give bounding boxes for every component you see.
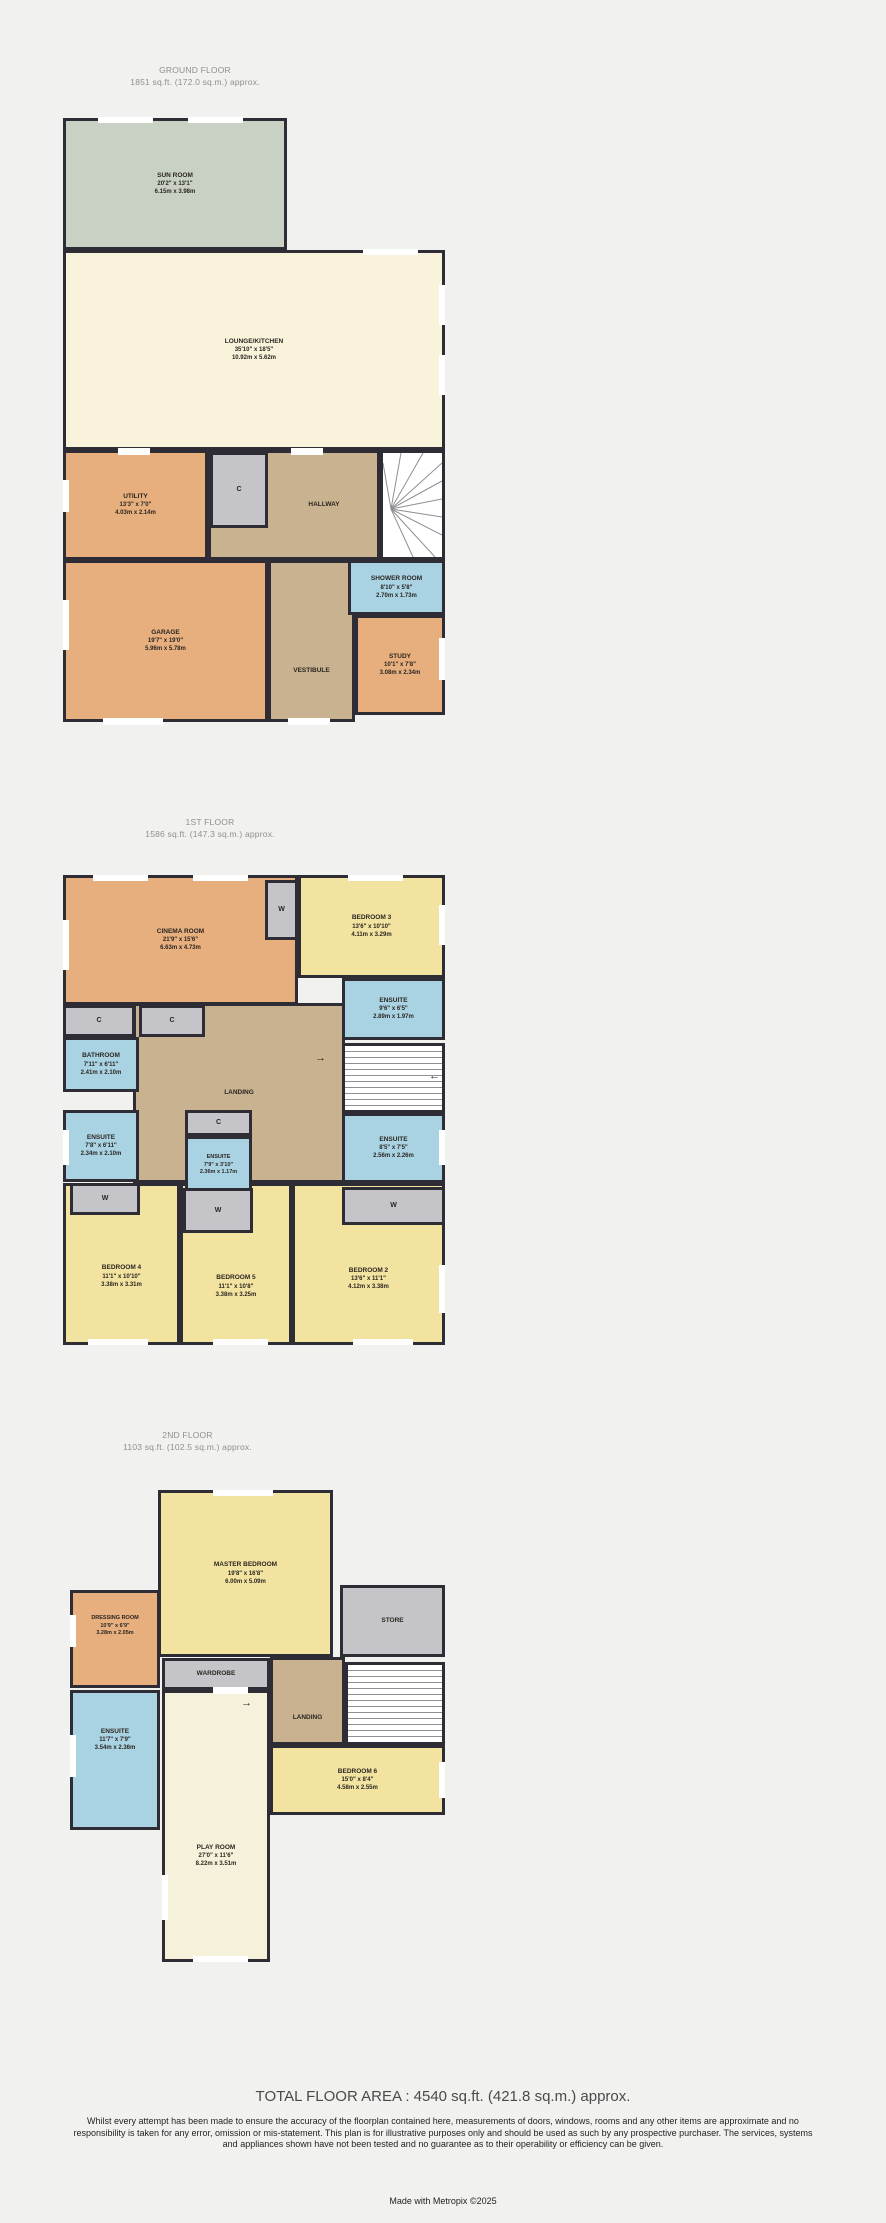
room-name: LANDING (293, 1714, 323, 1723)
room-dressing-room: DRESSING ROOM10'9" x 6'9"3.28m x 2.05m (70, 1590, 160, 1688)
window (439, 1762, 445, 1798)
window (193, 875, 248, 881)
room-dims-metric: 4.03m x 2.14m (115, 509, 156, 517)
room-dims-metric: 3.08m x 2.34m (380, 669, 421, 677)
room-dims-imperial: 13'3" x 7'0" (115, 501, 156, 509)
window (193, 1956, 248, 1962)
room-shower-room: SHOWER ROOM8'10" x 5'8"2.70m x 1.73m (348, 560, 445, 615)
window (439, 285, 445, 325)
room-name: MASTER BEDROOM (214, 1561, 277, 1570)
room-dims-imperial: 9'6" x 6'5" (373, 1005, 414, 1013)
staircase-ground (380, 450, 445, 560)
room-dims-metric: 4.58m x 2.55m (337, 1784, 378, 1792)
door-opening (118, 448, 150, 455)
room-dims-metric: 10.92m x 5.62m (225, 354, 284, 362)
room-dims-metric: 3.28m x 2.05m (91, 1630, 138, 1637)
room-name: BATHROOM (81, 1052, 122, 1061)
room-name: LANDING (224, 1089, 254, 1098)
room-dims-imperial: 11'7" x 7'9" (95, 1736, 136, 1744)
room-dims-imperial: 13'6" x 10'10" (351, 923, 391, 931)
window (348, 875, 403, 881)
window (363, 249, 418, 255)
floorplan-page: GROUND FLOOR 1851 sq.ft. (172.0 sq.m.) a… (0, 0, 886, 2223)
room-dims-metric: 5.96m x 5.78m (145, 645, 186, 653)
first-floor-plan: LANDING CINEMA ROOM21'9" x 15'6"6.63m x … (63, 875, 445, 1345)
room-dims-metric: 6.63m x 4.73m (157, 944, 204, 952)
metropix-credit: Made with Metropix ©2025 (0, 2196, 886, 2206)
room-ensuite-second: ENSUITE11'7" x 7'9"3.54m x 2.36m (70, 1690, 160, 1830)
room-dims-imperial: 7'9" x 3'10" (200, 1162, 237, 1169)
room-name: BEDROOM 3 (351, 914, 391, 923)
room-wardrobe-box: W (265, 880, 298, 940)
window (439, 1130, 445, 1165)
second-floor-header: 2ND FLOOR 1103 sq.ft. (102.5 sq.m.) appr… (40, 1429, 335, 1454)
room-dims-imperial: 27'0" x 11'6" (196, 1852, 237, 1860)
room-sun-room: SUN ROOM20'2" x 13'1"6.15m x 3.98m (63, 118, 287, 250)
room-name: ENSUITE (81, 1134, 122, 1143)
window (439, 1265, 445, 1313)
room-name: W (215, 1206, 222, 1215)
room-name: PLAY ROOM (196, 1844, 237, 1853)
room-cinema: CINEMA ROOM21'9" x 15'6"6.63m x 4.73m (63, 875, 298, 1005)
room-landing: LANDING (270, 1657, 345, 1745)
room-name: HALLWAY (308, 501, 339, 510)
room-dims-metric: 3.54m x 2.36m (95, 1744, 136, 1752)
staircase-second (345, 1662, 445, 1745)
room-dims-metric: 2.56m x 2.26m (373, 1152, 414, 1160)
room-bedroom-3: BEDROOM 313'6" x 10'10"4.11m x 3.29m (298, 875, 445, 978)
room-dims-metric: 2.89m x 1.97m (373, 1013, 414, 1021)
room-study: STUDY10'1" x 7'8"3.08m x 2.34m (355, 615, 445, 715)
window (439, 638, 445, 680)
room-cupboard: C (139, 1005, 205, 1037)
room-name: W (278, 905, 285, 914)
room-dims-imperial: 20'2" x 13'1" (155, 180, 196, 188)
room-dims-metric: 2.34m x 2.10m (81, 1150, 122, 1158)
first-floor-header: 1ST FLOOR 1586 sq.ft. (147.3 sq.m.) appr… (60, 816, 360, 841)
room-dims-metric: 6.15m x 3.98m (155, 188, 196, 196)
room-name: DRESSING ROOM (91, 1615, 138, 1622)
room-store: STORE (340, 1585, 445, 1657)
room-name: SUN ROOM (155, 172, 196, 181)
stairs-arrow-icon: ← (429, 1071, 440, 1082)
room-dims-metric: 2.41m x 2.10m (81, 1069, 122, 1077)
window (63, 600, 69, 650)
room-wardrobe-box: W (342, 1187, 445, 1225)
room-dims-imperial: 8'10" x 5'8" (371, 584, 422, 592)
total-floor-area: TOTAL FLOOR AREA : 4540 sq.ft. (421.8 sq… (0, 2088, 886, 2105)
room-ensuite-right: ENSUITE8'5" x 7'5"2.56m x 2.26m (342, 1113, 445, 1183)
room-dims-imperial: 7'11" x 6'11" (81, 1061, 122, 1069)
room-bedroom-6: BEDROOM 615'0" x 8'4"4.58m x 2.55m (270, 1745, 445, 1815)
room-dims-imperial: 8'5" x 7'5" (373, 1144, 414, 1152)
room-name: ENSUITE (373, 1136, 414, 1145)
spiral-stairs-icon (383, 453, 442, 557)
window (188, 117, 243, 123)
door-opening (288, 718, 330, 725)
room-dims-metric: 2.70m x 1.73m (371, 592, 422, 600)
room-vestibule: VESTIBULE (268, 560, 355, 722)
room-name: WARDROBE (197, 1670, 236, 1679)
window (63, 920, 69, 970)
room-dims-imperial: 19'7" x 19'0" (145, 637, 186, 645)
room-master-bedroom: MASTER BEDROOM19'8" x 16'8"6.00m x 5.09m (158, 1490, 333, 1657)
room-cupboard: C (185, 1110, 252, 1136)
room-name: LOUNGE/KITCHEN (225, 338, 284, 347)
window (103, 718, 163, 725)
room-name: C (236, 485, 241, 494)
floor-area: 1103 sq.ft. (102.5 sq.m.) approx. (40, 1441, 335, 1453)
room-name: BEDROOM 6 (337, 1768, 378, 1777)
room-ensuite-left: ENSUITE7'8" x 6'11"2.34m x 2.10m (63, 1110, 139, 1182)
room-dims-metric: 3.38m x 3.25m (216, 1291, 257, 1299)
room-dims-imperial: 11'1" x 10'8" (216, 1283, 257, 1291)
room-name: GARAGE (145, 629, 186, 638)
room-dims-imperial: 11'1" x 10'10" (101, 1273, 142, 1281)
room-name: SHOWER ROOM (371, 575, 422, 584)
window (213, 1339, 268, 1345)
room-dims-imperial: 19'8" x 16'8" (214, 1570, 277, 1578)
room-dims-metric: 2.36m x 1.17m (200, 1169, 237, 1176)
floor-area: 1851 sq.ft. (172.0 sq.m.) approx. (45, 76, 345, 88)
room-dims-metric: 6.00m x 5.09m (214, 1578, 277, 1586)
room-cupboard: C (210, 452, 268, 528)
room-dims-metric: 4.11m x 3.29m (351, 931, 391, 939)
window (213, 1490, 273, 1496)
room-name: W (102, 1194, 109, 1203)
room-garage: GARAGE19'7" x 19'0"5.96m x 5.78m (63, 560, 268, 722)
stairs-arrow-icon: → (315, 1053, 326, 1064)
room-ensuite-center: ENSUITE7'9" x 3'10"2.36m x 1.17m (185, 1136, 252, 1195)
room-name: ENSUITE (95, 1728, 136, 1737)
room-dims-metric: 8.22m x 3.51m (196, 1860, 237, 1868)
floor-title: GROUND FLOOR (45, 64, 345, 76)
window (88, 1339, 148, 1345)
room-bathroom: BATHROOM7'11" x 6'11"2.41m x 2.10m (63, 1037, 139, 1092)
room-name: VESTIBULE (293, 667, 329, 676)
room-name: UTILITY (115, 493, 156, 502)
room-name: BEDROOM 5 (216, 1274, 257, 1283)
window (63, 480, 69, 512)
room-name: STUDY (380, 653, 421, 662)
window (70, 1615, 76, 1647)
floor-area: 1586 sq.ft. (147.3 sq.m.) approx. (60, 828, 360, 840)
window (93, 875, 148, 881)
ground-floor-header: GROUND FLOOR 1851 sq.ft. (172.0 sq.m.) a… (45, 64, 345, 89)
room-utility: UTILITY13'3" x 7'0"4.03m x 2.14m (63, 450, 208, 560)
window (439, 905, 445, 945)
room-dims-imperial: 35'10" x 18'5" (225, 346, 284, 354)
room-dims-imperial: 15'0" x 8'4" (337, 1776, 378, 1784)
floor-title: 1ST FLOOR (60, 816, 360, 828)
room-name: C (169, 1016, 174, 1025)
room-wardrobe-box: W (183, 1188, 253, 1233)
room-name: BEDROOM 2 (348, 1267, 389, 1276)
stairs-arrow-icon: → (241, 1698, 252, 1709)
room-play-room: PLAY ROOM27'0" x 11'6"8.22m x 3.51m (162, 1690, 270, 1962)
room-name: STORE (381, 1617, 403, 1626)
room-name: W (390, 1201, 397, 1210)
room-name: CINEMA ROOM (157, 928, 204, 937)
room-ensuite-bed3: ENSUITE9'6" x 6'5"2.89m x 1.97m (342, 978, 445, 1040)
window (98, 117, 153, 123)
room-name: C (216, 1118, 221, 1127)
window (353, 1339, 413, 1345)
door-opening (291, 448, 323, 455)
room-dims-metric: 4.12m x 3.38m (348, 1283, 389, 1291)
window (162, 1875, 168, 1920)
room-name: ENSUITE (200, 1154, 237, 1161)
room-dims-imperial: 10'1" x 7'8" (380, 661, 421, 669)
room-dims-imperial: 10'9" x 6'9" (91, 1623, 138, 1630)
second-floor-plan: MASTER BEDROOM19'8" x 16'8"6.00m x 5.09m… (63, 1490, 445, 1965)
room-lounge-kitchen: LOUNGE/KITCHEN35'10" x 18'5"10.92m x 5.6… (63, 250, 445, 450)
room-dims-metric: 3.38m x 3.31m (101, 1281, 142, 1289)
floor-title: 2ND FLOOR (40, 1429, 335, 1441)
ground-floor-plan: SUN ROOM20'2" x 13'1"6.15m x 3.98m LOUNG… (63, 110, 445, 725)
room-name: BEDROOM 4 (101, 1264, 142, 1273)
window (70, 1735, 76, 1777)
window (63, 1130, 69, 1165)
room-cupboard: C (63, 1005, 135, 1037)
room-dims-imperial: 7'8" x 6'11" (81, 1142, 122, 1150)
room-dims-imperial: 21'9" x 15'6" (157, 936, 204, 944)
room-dims-imperial: 13'6" x 11'1" (348, 1275, 389, 1283)
disclaimer-text: Whilst every attempt has been made to en… (70, 2116, 816, 2151)
room-wardrobe-box: W (70, 1183, 140, 1215)
door-opening (213, 1687, 248, 1694)
window (439, 355, 445, 395)
room-name: C (96, 1016, 101, 1025)
room-wardrobe: WARDROBE (162, 1658, 270, 1690)
room-name: ENSUITE (373, 997, 414, 1006)
